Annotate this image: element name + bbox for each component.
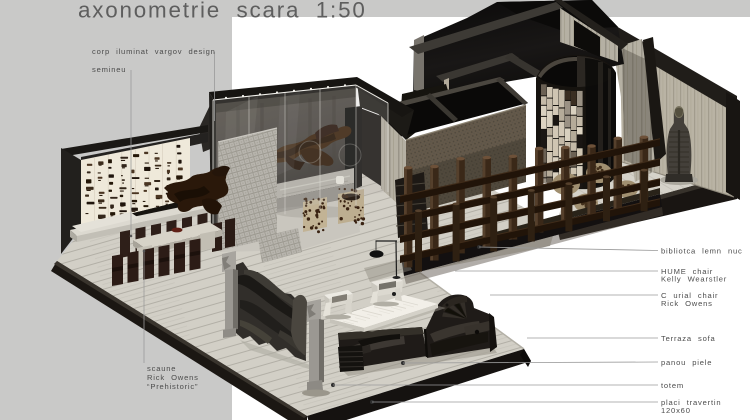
svg-text:totem: totem — [661, 381, 684, 390]
svg-text:axonometrie scara 1:50: axonometrie scara 1:50 — [78, 0, 367, 23]
svg-text:corp iluminat vargov design: corp iluminat vargov design — [92, 47, 216, 56]
svg-text:Terraza sofa: Terraza sofa — [661, 334, 716, 343]
svg-text:120x60: 120x60 — [661, 406, 691, 415]
svg-text:panou piele: panou piele — [661, 358, 712, 367]
svg-text:scaune: scaune — [147, 364, 176, 373]
svg-text:“Prehistoric”: “Prehistoric” — [147, 382, 198, 391]
svg-text:bibliotca lemn nuc: bibliotca lemn nuc — [661, 247, 743, 256]
svg-text:Rick Owens: Rick Owens — [147, 373, 199, 382]
svg-text:semineu: semineu — [92, 65, 126, 74]
svg-text:Rick Owens: Rick Owens — [661, 299, 713, 308]
svg-text:Kelly Wearstler: Kelly Wearstler — [661, 275, 727, 284]
